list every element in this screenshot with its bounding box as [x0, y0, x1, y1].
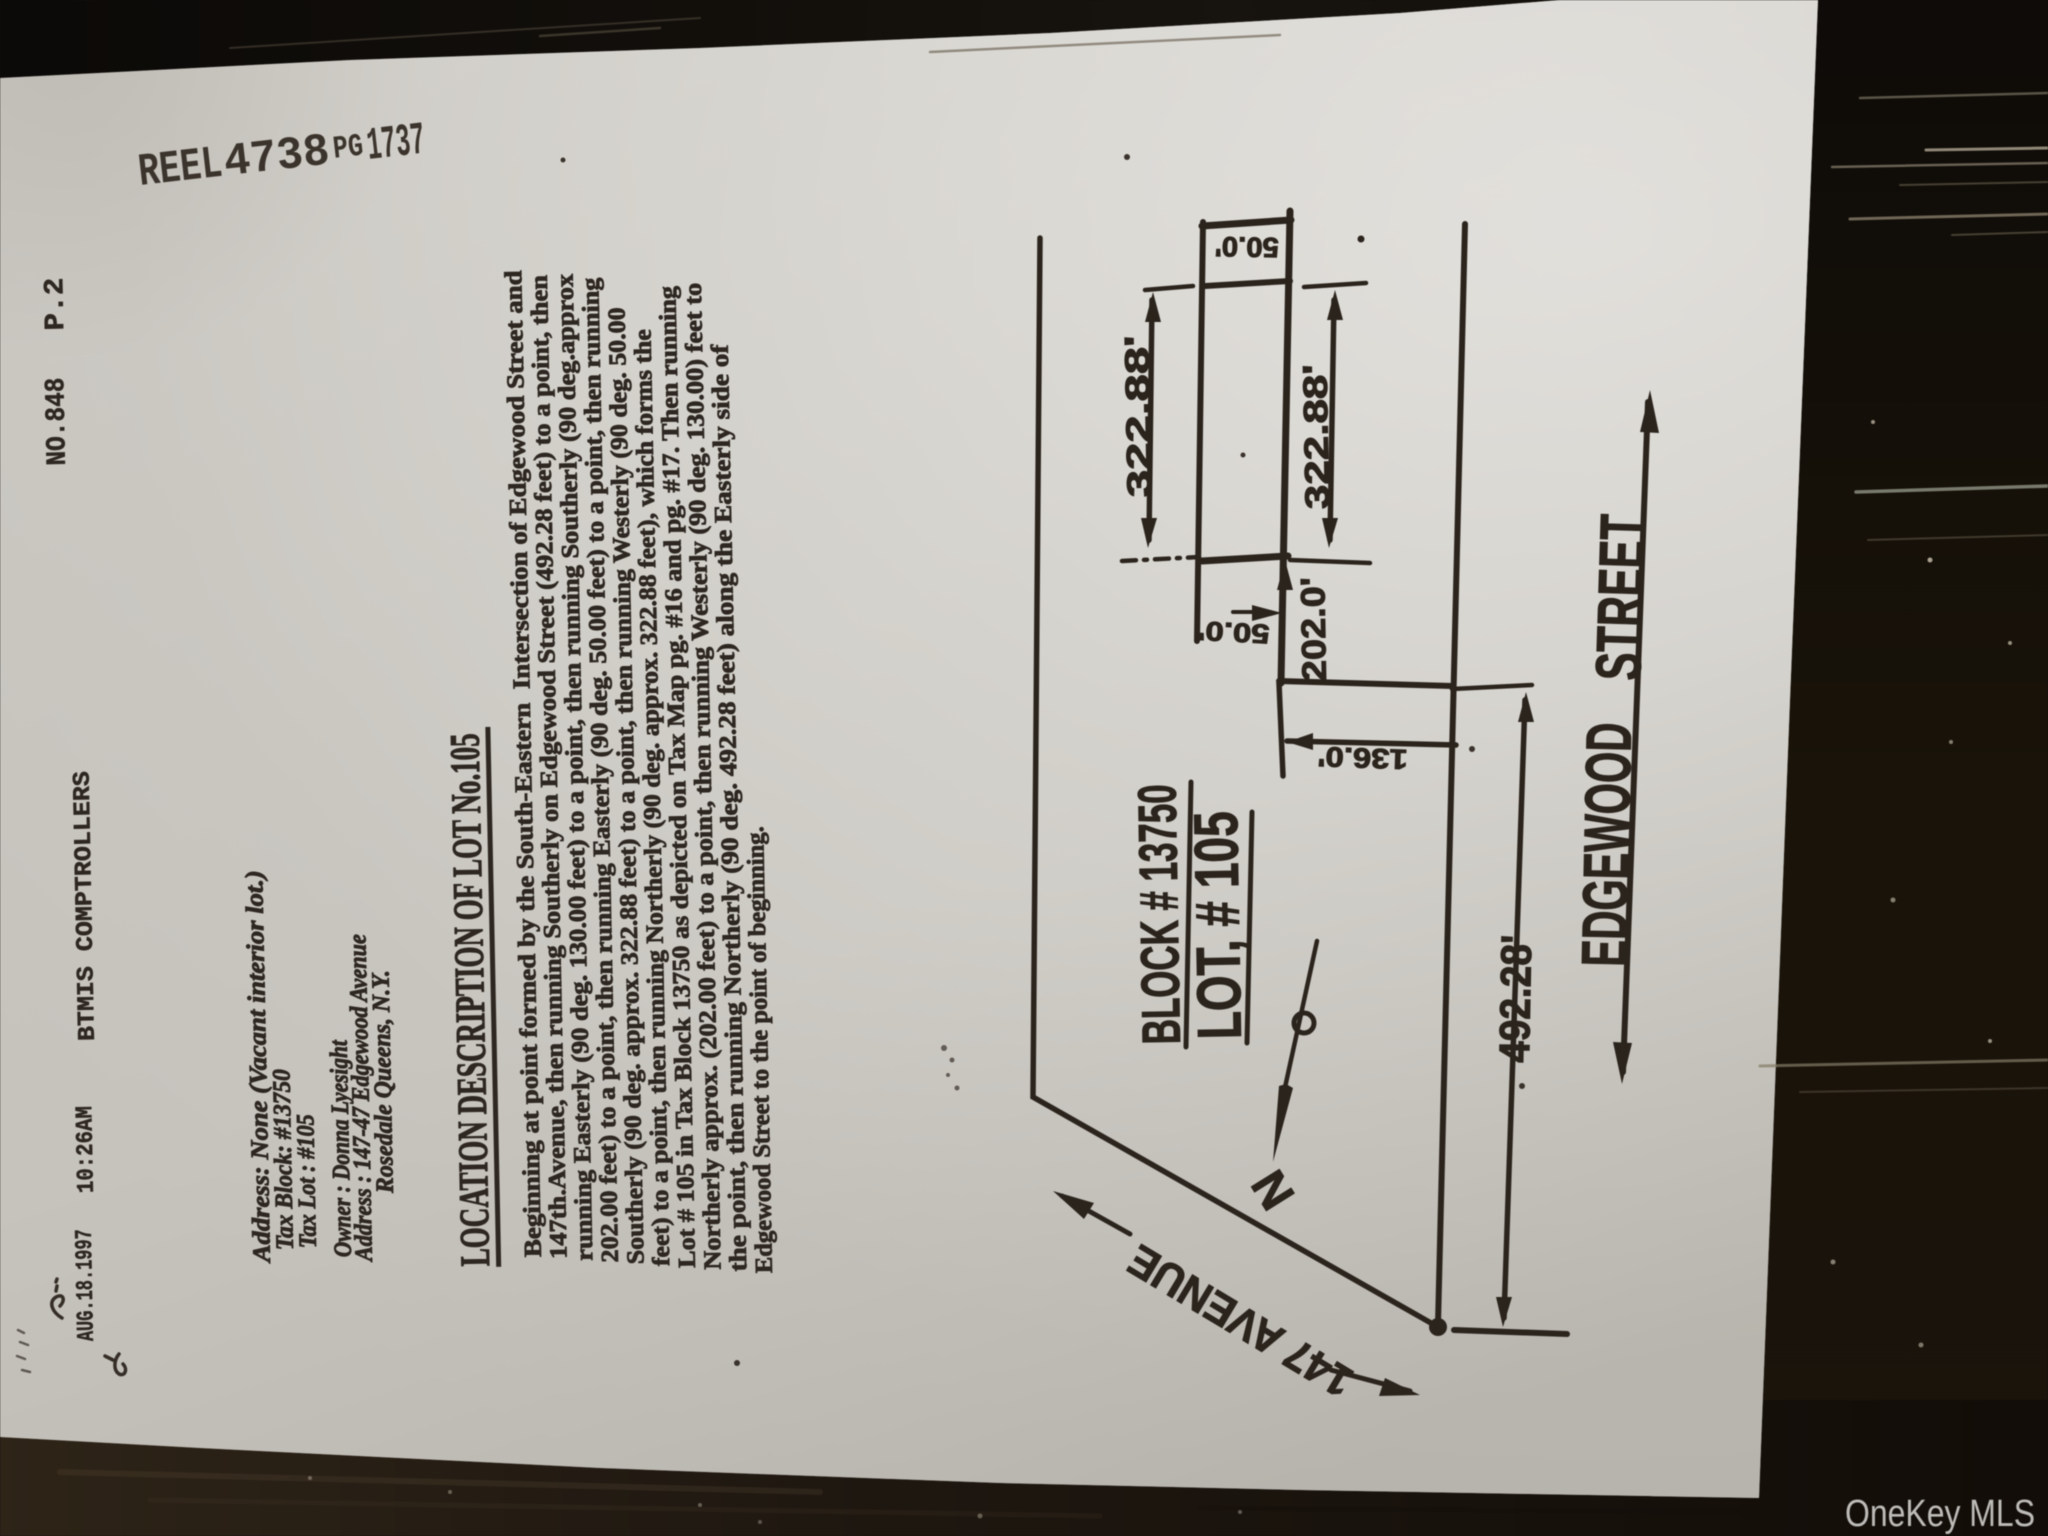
svg-text:322.88': 322.88' — [1296, 364, 1337, 510]
svg-text:492.28': 492.28' — [1491, 934, 1541, 1063]
svg-text:1737: 1737 — [364, 115, 428, 173]
svg-text:202.0': 202.0' — [1294, 577, 1334, 682]
svg-text:Tax Lot : #105: Tax Lot : #105 — [292, 1114, 322, 1249]
svg-text:136.0': 136.0' — [1317, 741, 1408, 775]
svg-text:BTMIS COMPTROLLERS: BTMIS COMPTROLLERS — [70, 771, 102, 1041]
svg-text:322.88': 322.88' — [1118, 335, 1159, 498]
svg-text:PG: PG — [331, 128, 365, 168]
svg-text:STREET: STREET — [1582, 513, 1659, 681]
svg-text:50.0': 50.0' — [1197, 615, 1270, 649]
svg-text:Rosedale Queens, N.Y.: Rosedale Queens, N.Y. — [368, 970, 399, 1194]
svg-text:AUG.18.1997: AUG.18.1997 — [72, 1229, 101, 1342]
svg-text:50.0': 50.0' — [1215, 231, 1280, 263]
svg-text:10:26AM: 10:26AM — [72, 1106, 101, 1194]
svg-text:P.2: P.2 — [40, 277, 72, 331]
svg-text:OneKey MLS: OneKey MLS — [1845, 1493, 2035, 1535]
svg-text:EDGEWOOD: EDGEWOOD — [1568, 722, 1645, 967]
svg-text:REEL: REEL — [136, 138, 225, 199]
svg-text:LOT, # 105: LOT, # 105 — [1182, 811, 1255, 1040]
svg-text:NO.848: NO.848 — [41, 377, 74, 466]
